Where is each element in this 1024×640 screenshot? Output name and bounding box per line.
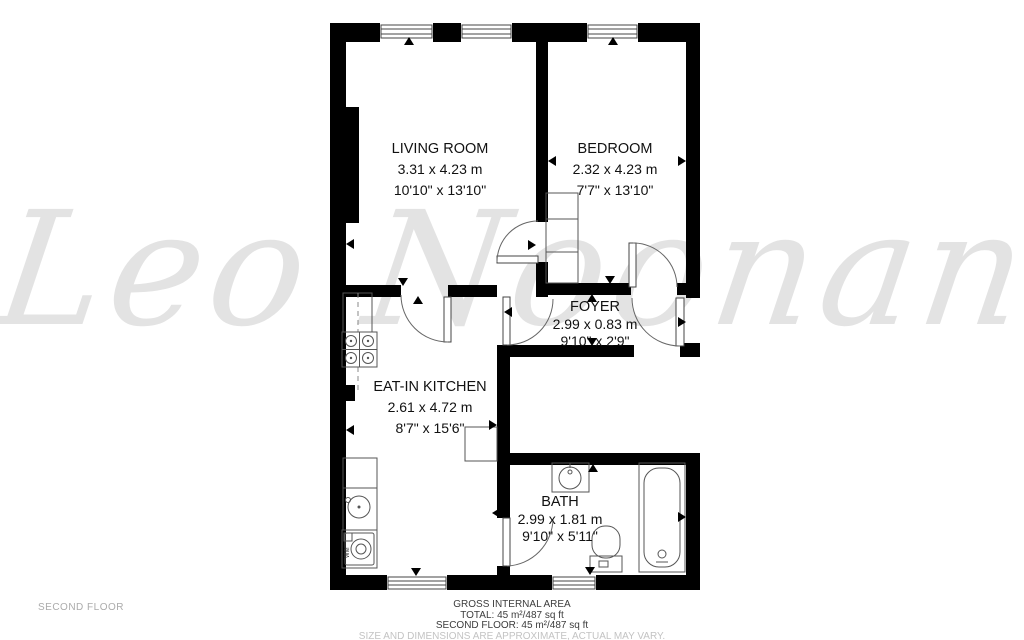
floor-plan-drawing: WM: [0, 0, 1024, 640]
area-summary-floor-total: SECOND FLOOR: 45 m²/487 sq ft: [0, 621, 1024, 632]
living-room-dim-m: 3.31 x 4.23 m: [398, 161, 483, 177]
window: [461, 23, 512, 42]
kitchen-label: EAT-IN KITCHEN: [373, 379, 486, 395]
chimney-breast: [346, 107, 359, 223]
window: [552, 575, 596, 590]
living-room-dim-ft: 10'10" x 13'10": [394, 182, 486, 198]
door-kitchen-foyer: [503, 297, 553, 345]
living-room-label: LIVING ROOM: [392, 141, 489, 157]
kitchen-dim-m: 2.61 x 4.72 m: [388, 399, 473, 415]
bedroom-label: BEDROOM: [578, 141, 653, 157]
bedroom-dim-m: 2.32 x 4.23 m: [573, 161, 658, 177]
bath-sink-icon: [552, 463, 589, 492]
area-summary-title: GROSS INTERNAL AREA: [0, 600, 1024, 611]
door-living-bedroom: [497, 221, 538, 263]
window: [380, 23, 433, 42]
washing-machine-icon: WM: [342, 530, 377, 568]
entry-door: [632, 298, 684, 346]
floor-plan-page: Leo Noonan: [0, 0, 1024, 640]
closet-icon: [546, 193, 578, 283]
window: [387, 575, 447, 590]
kitchen-sink-icon: [343, 488, 377, 530]
kitchen-dim-ft: 8'7" x 15'6": [396, 420, 465, 436]
bath-label: BATH: [541, 494, 579, 510]
foyer-dim-ft: 9'10" x 2'9": [561, 333, 630, 349]
area-summary: GROSS INTERNAL AREA TOTAL: 45 m²/487 sq …: [0, 600, 1024, 640]
foyer-dim-m: 2.99 x 0.83 m: [553, 316, 638, 332]
bath-dim-ft: 9'10" x 5'11": [522, 528, 598, 544]
wall-pier: [346, 385, 355, 401]
door-bedroom: [629, 243, 677, 287]
kitchen-table: [465, 427, 497, 461]
foyer-label: FOYER: [570, 299, 620, 315]
washing-machine-label: WM: [345, 547, 351, 558]
bedroom-dim-ft: 7'7" x 13'10": [577, 182, 654, 198]
stove-icon: [342, 332, 377, 367]
area-disclaimer: SIZE AND DIMENSIONS ARE APPROXIMATE, ACT…: [0, 632, 1024, 640]
room-labels: LIVING ROOM 3.31 x 4.23 m 10'10" x 13'10…: [373, 141, 657, 544]
dimension-arrows: [346, 37, 686, 576]
door-living-kitchen: [401, 295, 451, 342]
bath-dim-m: 2.99 x 1.81 m: [518, 511, 603, 527]
